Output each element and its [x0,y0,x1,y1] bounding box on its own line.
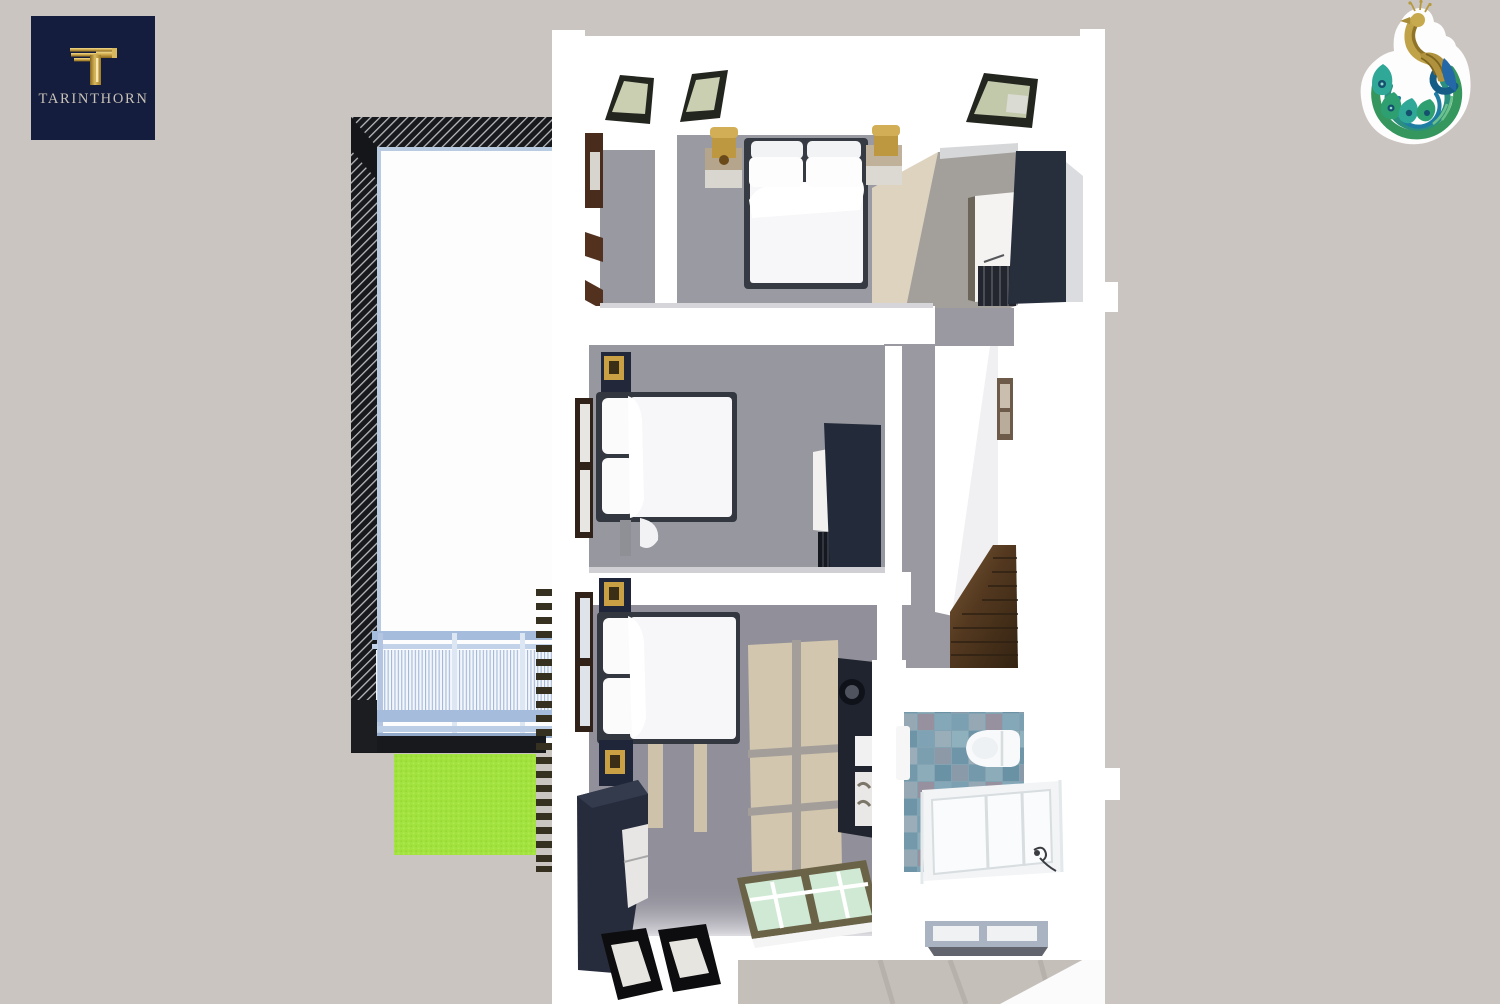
svg-text:TARINTHORN: TARINTHORN [38,91,148,107]
